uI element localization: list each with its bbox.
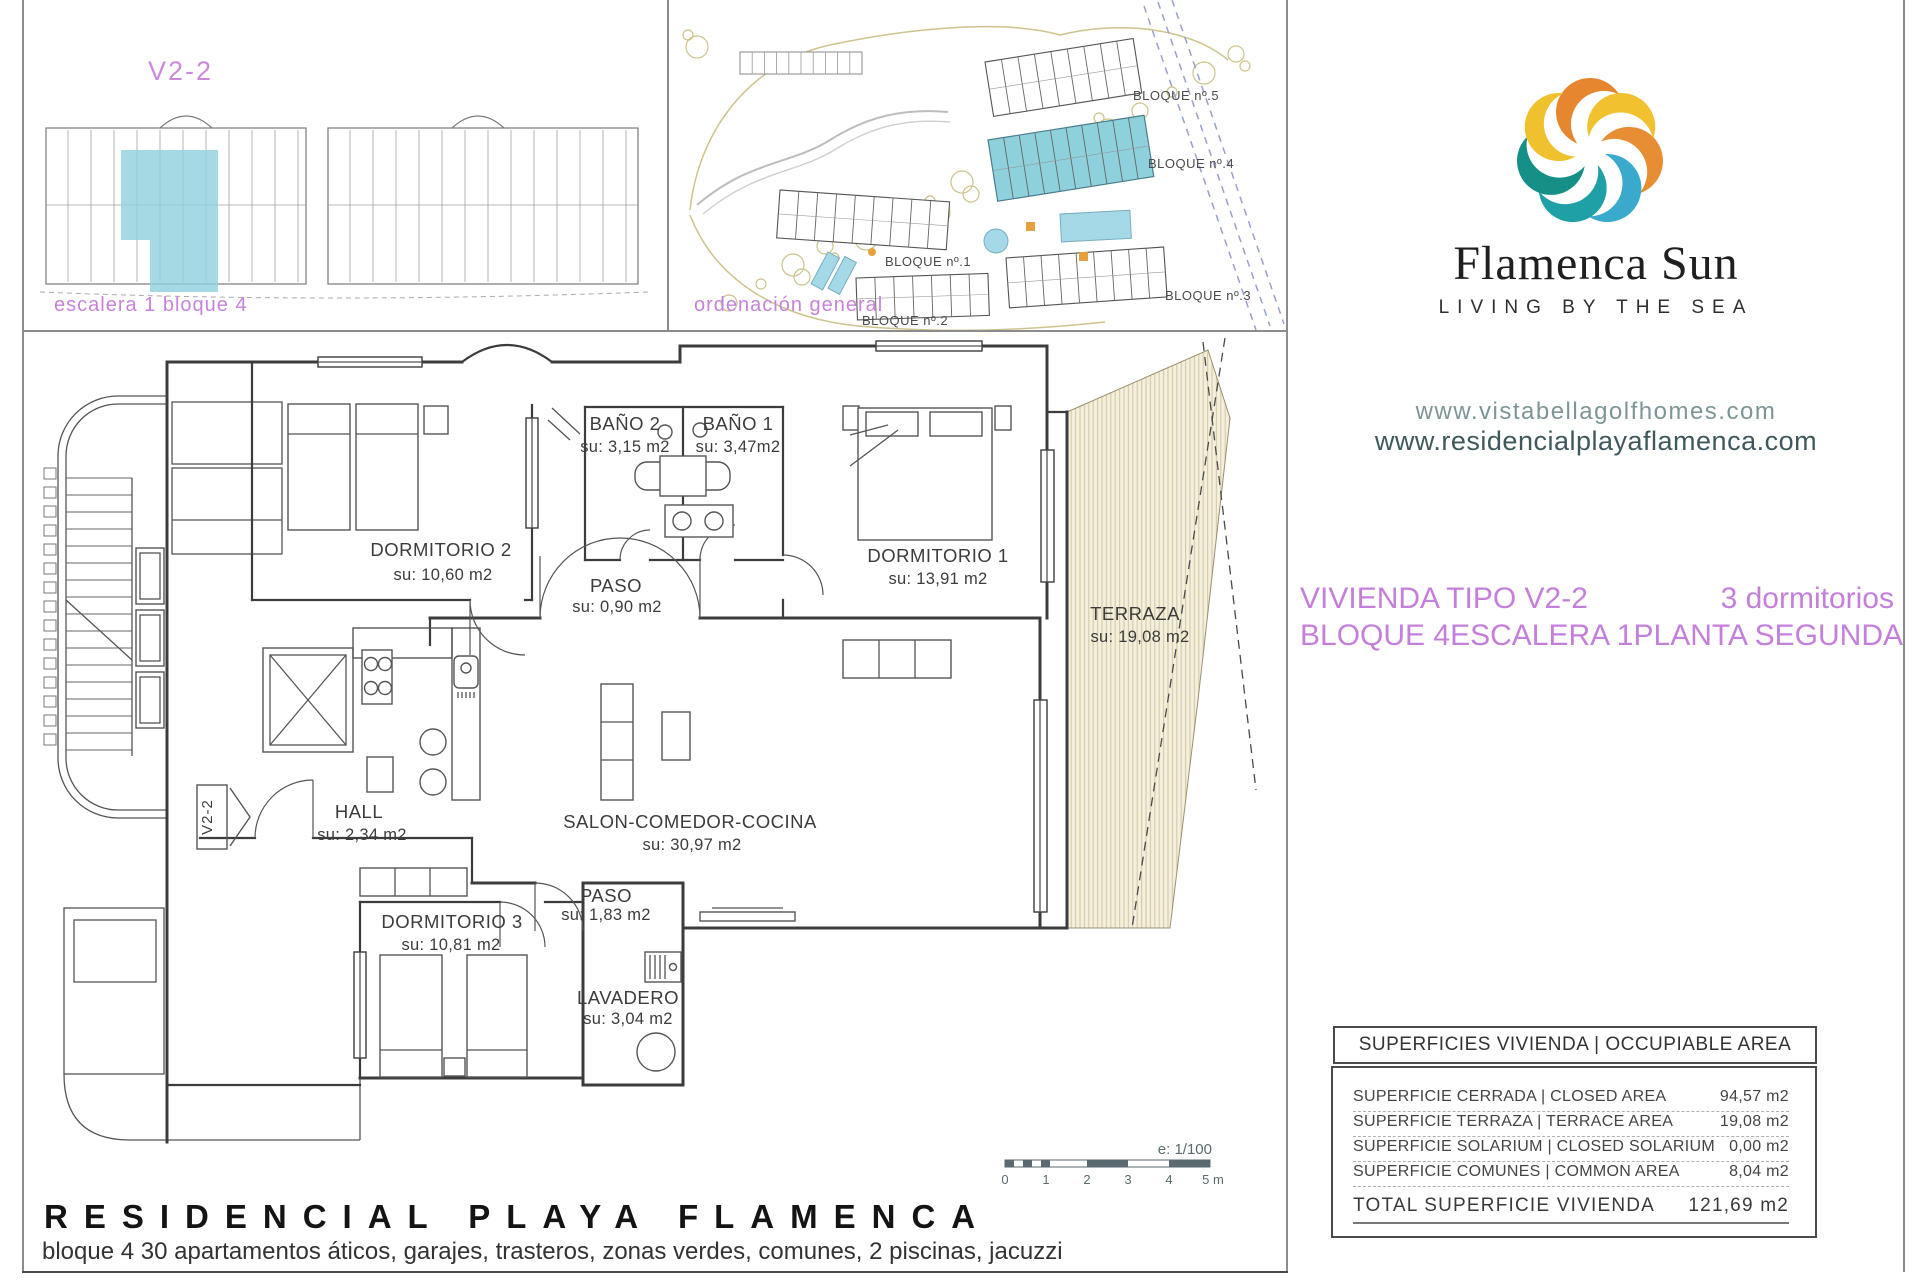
scale-label: e: 1/100 xyxy=(1158,1141,1212,1158)
room-label-lavadero: LAVADERO xyxy=(577,987,679,1008)
scale-tick-0: 0 xyxy=(1001,1172,1008,1187)
room-label-dormitorio2: DORMITORIO 2 xyxy=(370,539,511,560)
website-link-2[interactable]: www.residencialplayaflamenca.com xyxy=(1288,426,1904,457)
unit-info-line-2: BLOQUE 4 ESCALERA 1 PLANTA SEGUNDA xyxy=(1300,619,1894,653)
project-description: bloque 4 30 apartamentos áticos, garajes… xyxy=(42,1238,1063,1266)
row-value: 8,04 m2 xyxy=(1729,1163,1789,1181)
room-label-bano1: BAÑO 1 xyxy=(703,413,774,434)
room-label-paso1: PASO xyxy=(590,575,642,596)
unit-bedrooms: 3 dormitorios xyxy=(1721,582,1894,616)
website-link-1[interactable]: www.vistabellagolfhomes.com xyxy=(1288,398,1904,426)
table-total-row: TOTAL SUPERFICIE VIVIENDA 121,69 m2 xyxy=(1353,1195,1789,1217)
mini-building-plan xyxy=(40,116,648,298)
unit-marker: V2-2 xyxy=(197,785,250,849)
scale-tick-2: 2 xyxy=(1083,1172,1090,1187)
scale-tick-4: 4 xyxy=(1165,1172,1172,1187)
room-area-dormitorio1: su: 13,91 m2 xyxy=(889,570,988,588)
stairwell xyxy=(44,396,167,818)
table-row: SUPERFICIE COMUNES | COMMON AREA 8,04 m2 xyxy=(1353,1163,1789,1187)
parking-strip xyxy=(740,52,862,74)
row-value: 19,08 m2 xyxy=(1720,1113,1789,1131)
room-label-bano2: BAÑO 2 xyxy=(590,413,661,434)
surface-table: SUPERFICIE CERRADA | CLOSED AREA 94,57 m… xyxy=(1331,1066,1817,1238)
site-block-4-highlighted xyxy=(988,115,1154,201)
row-label: SUPERFICIE CERRADA | CLOSED AREA xyxy=(1353,1088,1666,1106)
room-label-paso2: PASO xyxy=(580,885,632,906)
unit-type-label: VIVIENDA TIPO V2-2 xyxy=(1300,582,1588,616)
page-border-left xyxy=(22,0,24,1272)
table-row: SUPERFICIE CERRADA | CLOSED AREA 94,57 m… xyxy=(1353,1088,1789,1112)
room-label-hall: HALL xyxy=(335,801,383,822)
panel-divider-2 xyxy=(1286,0,1288,1272)
table-row: SUPERFICIE TERRAZA | TERRACE AREA 19,08 … xyxy=(1353,1113,1789,1137)
site-label-bloque3: BLOQUE nº.3 xyxy=(1165,288,1251,303)
table-row: SUPERFICIE SOLARIUM | CLOSED SOLARIUM 0,… xyxy=(1353,1138,1789,1162)
room-area-hall: su: 2,34 m2 xyxy=(317,826,407,844)
site-block-1 xyxy=(777,190,950,250)
scale-bar: e: 1/100 0 1 2 3 4 5 m xyxy=(1001,1141,1223,1187)
site-panel-caption: ordenación general xyxy=(694,294,883,317)
room-area-paso2: su: 1,83 m2 xyxy=(561,906,651,924)
total-underline xyxy=(1353,1222,1789,1224)
room-area-salon: su: 30,97 m2 xyxy=(643,836,742,854)
total-label: TOTAL SUPERFICIE VIVIENDA xyxy=(1353,1195,1655,1217)
site-small-pools xyxy=(811,248,856,297)
room-area-dormitorio2: su: 10,60 m2 xyxy=(394,566,493,584)
row-label: SUPERFICIE TERRAZA | TERRACE AREA xyxy=(1353,1113,1673,1131)
site-accent-2 xyxy=(1079,252,1088,261)
band-divider xyxy=(22,330,1288,332)
unit-panel-caption: escalera 1 bloque 4 xyxy=(54,294,248,317)
unit-marker-label: V2-2 xyxy=(199,799,216,835)
doors xyxy=(255,525,823,947)
room-area-bano2: su: 3,15 m2 xyxy=(580,438,670,456)
flamenca-sun-logo-icon xyxy=(1510,78,1669,233)
site-label-bloque1: BLOQUE nº.1 xyxy=(885,254,971,269)
room-label-dormitorio3: DORMITORIO 3 xyxy=(381,911,522,932)
unit-info-line-1: VIVIENDA TIPO V2-2 3 dormitorios xyxy=(1300,582,1894,616)
room-area-lavadero: su: 3,04 m2 xyxy=(583,1010,673,1028)
surface-table-header: SUPERFICIES VIVIENDA | OCCUPIABLE AREA xyxy=(1333,1026,1817,1064)
page-border-right xyxy=(1903,0,1905,1272)
room-label-terraza: TERRAZA xyxy=(1090,603,1180,624)
room-area-dormitorio3: su: 10,81 m2 xyxy=(402,936,501,954)
scale-tick-5: 5 m xyxy=(1202,1172,1224,1187)
room-area-paso1: su: 0,90 m2 xyxy=(572,598,662,616)
room-area-bano1: su: 3,47m2 xyxy=(696,438,781,456)
site-plan: BLOQUE nº.5 BLOQUE nº.4 BLOQUE nº.3 BLOQ… xyxy=(683,0,1284,330)
scale-tick-1: 1 xyxy=(1042,1172,1049,1187)
site-pool xyxy=(1060,210,1131,242)
panel-divider-1 xyxy=(667,0,669,331)
site-jacuzzi xyxy=(984,229,1008,253)
row-value: 94,57 m2 xyxy=(1720,1088,1789,1106)
unit-type-title: V2-2 xyxy=(148,56,213,87)
site-accent-3 xyxy=(868,248,876,256)
room-label-salon: SALON-COMEDOR-COCINA xyxy=(563,811,817,832)
unit-floor: PLANTA SEGUNDA xyxy=(1634,619,1904,653)
apartment-floor-plan: V2-2 DORMITORIO 2 su: 10,60 m2 BAÑO 2 su… xyxy=(44,338,1256,1187)
room-area-terraza: su: 19,08 m2 xyxy=(1091,628,1190,646)
unit-block: BLOQUE 4 xyxy=(1300,619,1450,653)
project-title: RESIDENCIAL PLAYA FLAMENCA xyxy=(44,1198,991,1236)
brand-tagline: LIVING BY THE SEA xyxy=(1288,297,1904,319)
room-label-dormitorio1: DORMITORIO 1 xyxy=(867,545,1008,566)
site-label-bloque5: BLOQUE nº.5 xyxy=(1133,88,1219,103)
floorplan-sheet: BLOQUE nº.5 BLOQUE nº.4 BLOQUE nº.3 BLOQ… xyxy=(0,0,1920,1280)
total-value: 121,69 m2 xyxy=(1688,1195,1789,1217)
site-label-bloque4: BLOQUE nº.4 xyxy=(1148,156,1234,171)
brand-name: Flamenca Sun xyxy=(1288,236,1904,291)
row-label: SUPERFICIE COMUNES | COMMON AREA xyxy=(1353,1163,1680,1181)
scale-tick-3: 3 xyxy=(1124,1172,1131,1187)
highlighted-unit xyxy=(121,150,218,292)
site-block-5 xyxy=(985,39,1142,117)
furniture xyxy=(263,404,1011,1077)
page-border-bottom xyxy=(22,1271,1288,1273)
room-labels: DORMITORIO 2 su: 10,60 m2 BAÑO 2 su: 3,1… xyxy=(317,413,1189,1028)
row-label: SUPERFICIE SOLARIUM | CLOSED SOLARIUM xyxy=(1353,1138,1715,1156)
row-value: 0,00 m2 xyxy=(1729,1138,1789,1156)
unit-stair: ESCALERA 1 xyxy=(1450,619,1633,653)
site-accent-1 xyxy=(1026,222,1035,231)
